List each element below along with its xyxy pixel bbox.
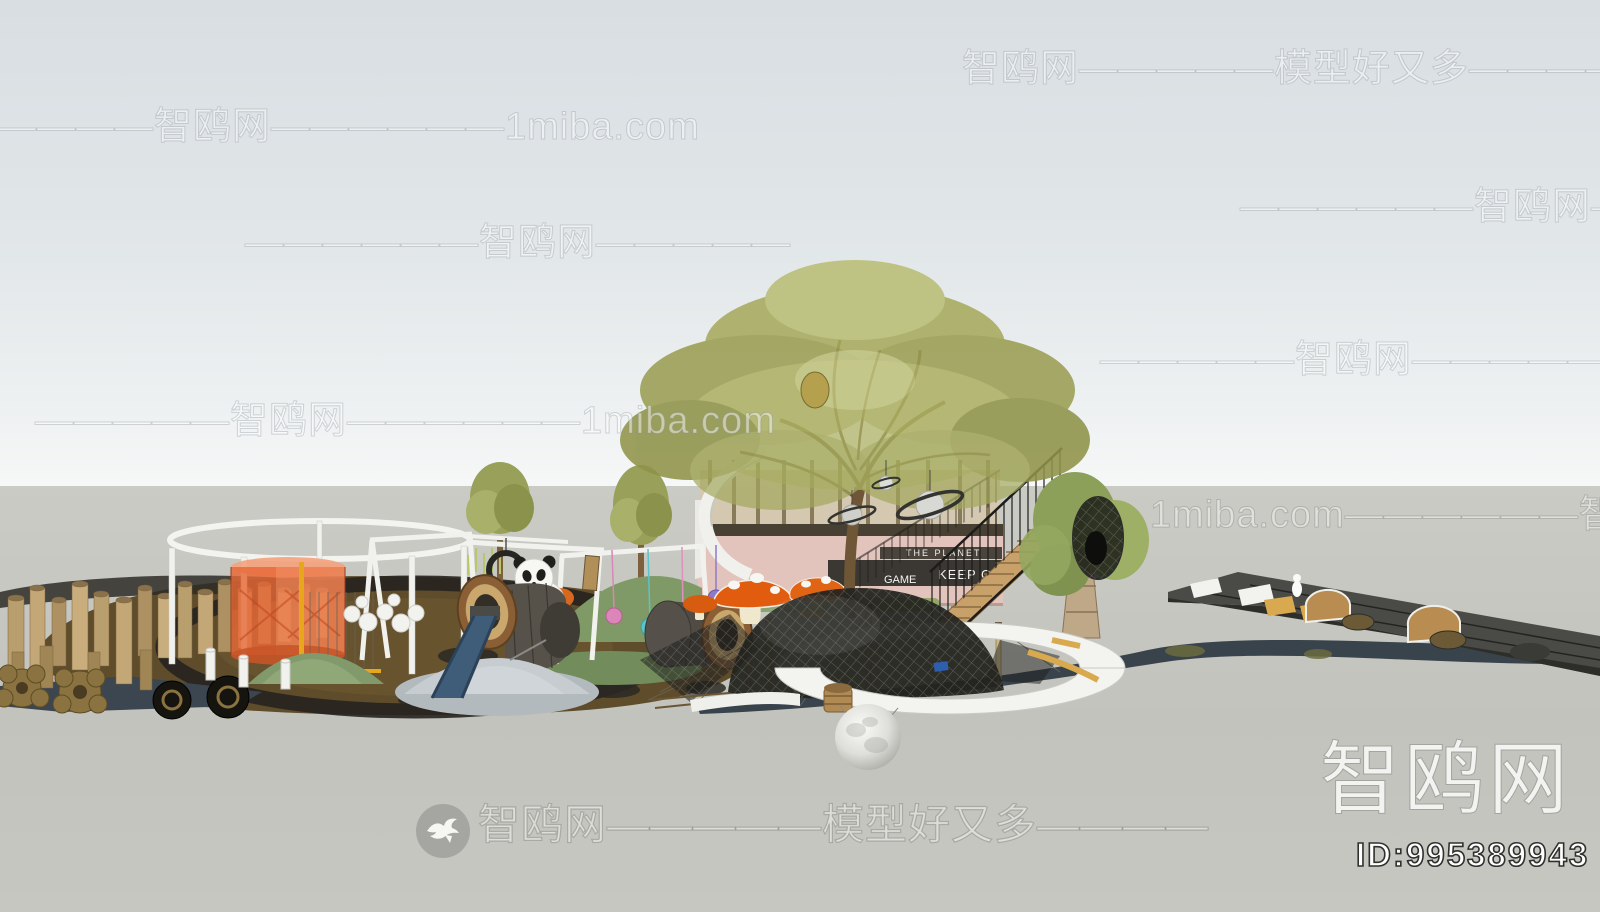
small-trees — [466, 462, 672, 588]
nest-pod-tree — [1019, 472, 1149, 638]
beehive-pod — [801, 372, 829, 408]
elevated-track — [1168, 572, 1600, 676]
barrel-planter — [824, 683, 852, 712]
model-preview-page: THE PLANET GAME KEEP GO — [0, 0, 1600, 912]
brand-watermark-large: 智鸥网 — [1320, 740, 1572, 820]
sign-game: GAME — [884, 574, 916, 586]
figure-on-track — [1292, 574, 1302, 597]
moon-sphere — [835, 704, 901, 770]
site-logo — [416, 804, 470, 858]
model-id-badge: ID:995389943 — [1356, 838, 1589, 871]
seagull-bird-icon — [423, 811, 463, 851]
